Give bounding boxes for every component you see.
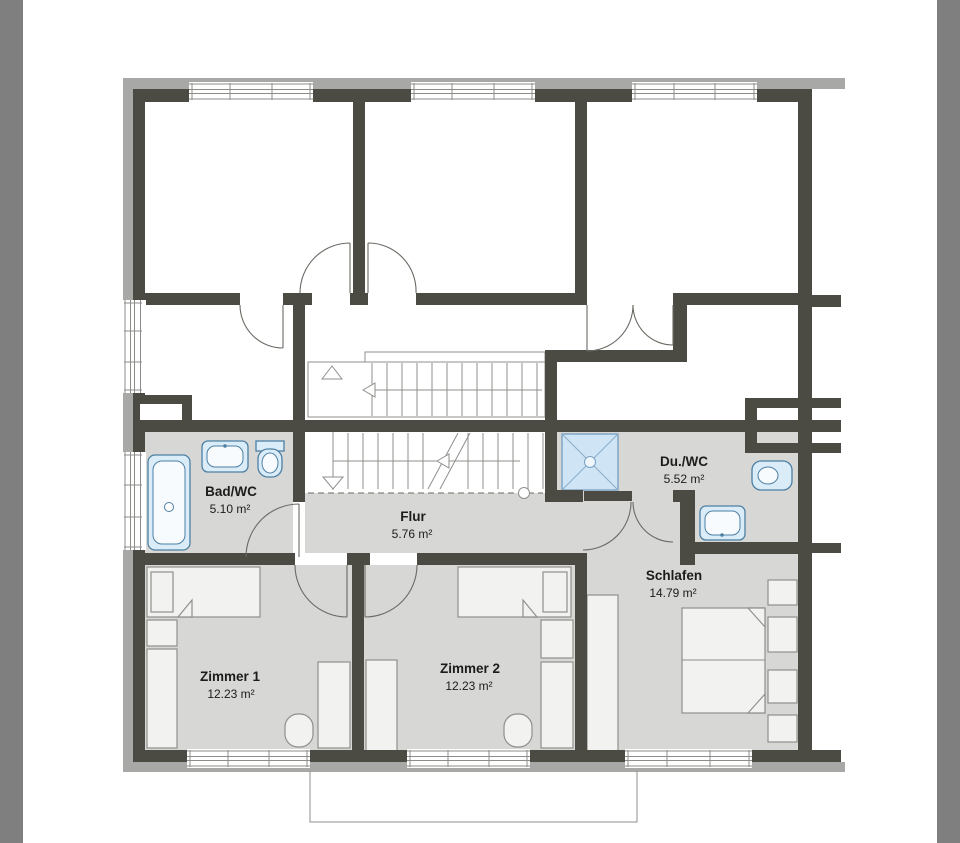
handrail-post-icon	[519, 488, 530, 499]
schlafen-wardrobe	[587, 595, 618, 751]
label-zimmer2: Zimmer 2	[440, 661, 500, 676]
label-flur: Flur	[400, 509, 426, 524]
wall-zimmer1-zimmer2	[352, 553, 364, 752]
zimmer2-chair	[504, 714, 532, 747]
window-bottom-3	[625, 749, 752, 768]
du-sink-basin	[705, 511, 740, 535]
insulation-left	[123, 78, 133, 772]
label-du-wc: Du./WC	[660, 454, 708, 469]
zimmer1-pillow	[151, 572, 173, 612]
wall-zimmer2-schlafen	[575, 553, 587, 752]
party-stub-6	[812, 750, 841, 762]
door-room-c-left	[587, 305, 633, 351]
floor-plan-canvas: Bad/WC 5.10 m² Flur 5.76 m² Du./WC 5.52 …	[0, 0, 960, 843]
schlafen-headboard-bottom	[768, 670, 797, 703]
floor-plan: Bad/WC 5.10 m² Flur 5.76 m² Du./WC 5.52 …	[0, 0, 960, 843]
stair-down-arrow-icon	[437, 454, 449, 468]
door-hall	[240, 305, 283, 348]
stair-upper-rail	[365, 352, 545, 362]
zimmer1-wardrobe	[147, 649, 177, 748]
wall-h3-a	[557, 490, 583, 502]
door-room-c-right	[633, 305, 673, 345]
zimmer2-nightstand	[541, 620, 573, 658]
party-stub-2	[745, 398, 841, 408]
area-zimmer1: 12.23 m²	[207, 687, 254, 701]
wall-hmid	[545, 350, 687, 362]
door-room-b	[368, 243, 416, 293]
floor-flur	[305, 493, 583, 553]
zimmer1-chair	[285, 714, 313, 747]
zimmer1-nightstand	[147, 620, 177, 646]
bad-sink-faucet-icon	[223, 444, 227, 448]
party-stub-4	[745, 443, 841, 453]
wall-stair-left	[293, 293, 305, 502]
label-zimmer1: Zimmer 1	[200, 669, 261, 684]
wall-h6-c	[417, 553, 545, 565]
wall-h2	[133, 420, 798, 432]
wall-h1-a	[133, 293, 240, 305]
party-stub-5	[812, 543, 841, 553]
shower-drain-icon	[585, 457, 596, 468]
wall-h3-b	[673, 490, 695, 502]
du-sink-faucet-icon	[720, 533, 724, 537]
wall-h1-e	[673, 293, 798, 305]
schlafen-nightstand-bottom	[768, 715, 797, 742]
schlafen-headboard-top	[768, 617, 797, 652]
wall-h1-d	[416, 293, 587, 305]
area-zimmer2: 12.23 m²	[445, 679, 492, 693]
balcony-outline	[310, 771, 637, 822]
wall-duwc-bottom	[695, 542, 798, 554]
door-leaf-duwc	[584, 491, 632, 501]
wall-v6	[680, 502, 695, 565]
right-gutter	[937, 0, 960, 843]
stair-lower-walkline	[333, 461, 520, 477]
door-room-a	[300, 243, 350, 293]
stair-down-tip-icon	[323, 477, 343, 489]
bathtub-drain-icon	[165, 503, 174, 512]
du-toilet-bowl	[758, 467, 778, 484]
zimmer1-desk	[318, 662, 350, 748]
wall-room-b-c	[575, 101, 587, 293]
label-bad-wc: Bad/WC	[205, 484, 257, 499]
party-stub-1	[812, 295, 841, 307]
zimmer2-wardrobe	[366, 660, 397, 751]
bad-toilet-bowl	[262, 453, 278, 473]
wall-h1-c	[350, 293, 368, 305]
area-schlafen: 14.79 m²	[649, 586, 696, 600]
wall-room-a-b	[353, 101, 365, 293]
area-du-wc: 5.52 m²	[664, 472, 705, 486]
label-schlafen: Schlafen	[646, 568, 702, 583]
schlafen-nightstand-top	[768, 580, 797, 605]
party-stub-3	[812, 420, 841, 432]
zimmer2-pillow	[543, 572, 567, 612]
area-bad-wc: 5.10 m²	[210, 502, 251, 516]
wall-shaft-hole	[140, 404, 182, 420]
bad-sink-basin	[207, 446, 243, 467]
window-bottom-1	[187, 749, 310, 768]
wall-exterior-right	[798, 89, 812, 762]
window-bottom-2	[407, 749, 530, 768]
zimmer2-desk	[541, 662, 573, 748]
wall-h6-a	[133, 553, 295, 565]
area-flur: 5.76 m²	[392, 527, 433, 541]
left-gutter	[0, 0, 23, 843]
